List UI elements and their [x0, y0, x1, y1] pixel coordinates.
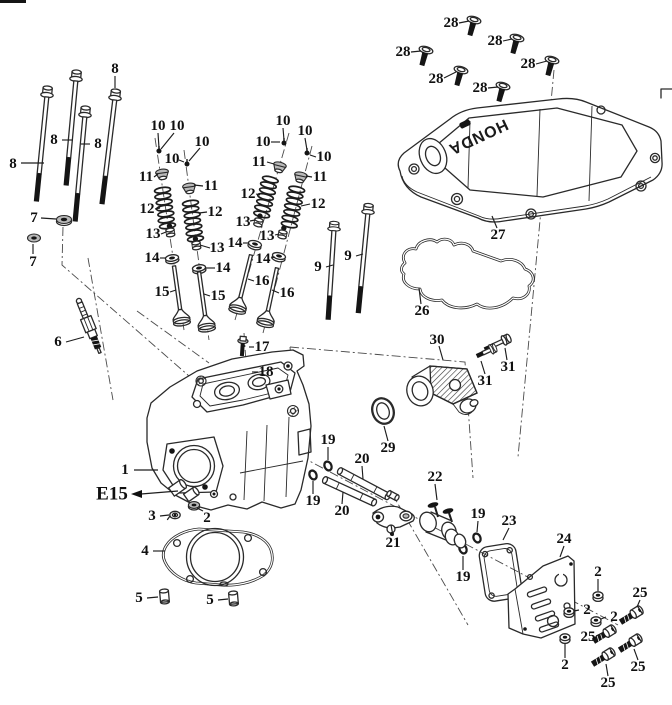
callout-label-12: 12	[311, 196, 326, 212]
part-oil-seal-29	[369, 395, 398, 427]
callout-label-9: 9	[344, 248, 352, 264]
callout-leader	[267, 162, 274, 164]
callout-label-2: 2	[610, 609, 618, 625]
callout-label-23: 23	[502, 513, 517, 529]
callout-leader	[411, 51, 421, 52]
callout-leader	[503, 39, 512, 41]
callout-leader	[283, 128, 284, 140]
part-camshaft-30	[403, 366, 479, 415]
callout-label-13: 13	[146, 226, 161, 242]
callout-label-19: 19	[306, 493, 321, 509]
callout-label-27: 27	[491, 227, 507, 243]
callout-label-14: 14	[145, 250, 161, 266]
callout-leader	[435, 484, 437, 500]
callout-label-5: 5	[135, 590, 143, 606]
callout-label-16: 16	[255, 273, 271, 289]
callout-leader	[170, 290, 176, 292]
callout-label-5: 5	[206, 592, 214, 608]
parts-diagram-canvas: HONDA	[0, 0, 672, 705]
part-head-gasket-4	[163, 529, 272, 587]
callout-leader	[444, 72, 456, 78]
callout-label-10: 10	[195, 134, 210, 150]
callout-label-19: 19	[321, 432, 336, 448]
part-cover-gasket-26	[401, 239, 533, 308]
callout-label-14: 14	[216, 260, 232, 276]
callout-leader	[305, 138, 307, 150]
callout-leader	[477, 521, 478, 532]
part-valve-cover-27: HONDA	[398, 98, 662, 222]
callout-label-18: 18	[259, 364, 274, 380]
callout-label-11: 11	[139, 169, 153, 185]
callout-label-6: 6	[54, 334, 62, 350]
callout-label-8: 8	[94, 136, 102, 152]
callout-leader	[301, 204, 310, 206]
callout-leader	[204, 294, 210, 296]
callout-label-25: 25	[581, 629, 596, 645]
callout-label-31: 31	[501, 359, 516, 375]
callout-label-28: 28	[473, 80, 488, 96]
callout-leader	[248, 279, 254, 281]
callout-label-10: 10	[256, 134, 271, 150]
callout-label-10: 10	[298, 123, 313, 139]
callout-leader	[158, 133, 159, 148]
callout-leader	[147, 597, 158, 598]
section-marker-text: E15	[96, 484, 128, 505]
corner-mark-top-right	[661, 89, 672, 98]
callout-leader	[503, 528, 509, 540]
callout-leader	[160, 515, 169, 516]
part-cylinder-head-1	[147, 350, 311, 510]
callout-leader	[41, 218, 56, 219]
callout-label-2: 2	[203, 510, 211, 526]
callout-label-15: 15	[155, 284, 170, 300]
callout-label-11: 11	[252, 154, 266, 170]
callout-label-28: 28	[429, 71, 444, 87]
part-bolt-3	[168, 511, 181, 519]
callout-label-1: 1	[121, 462, 129, 478]
callout-label-8: 8	[9, 156, 17, 172]
callout-label-13: 13	[236, 214, 251, 230]
callout-label-8: 8	[50, 132, 58, 148]
callout-label-20: 20	[355, 451, 370, 467]
callout-label-28: 28	[396, 44, 411, 60]
arrow-left-icon	[131, 490, 142, 498]
callout-label-12: 12	[140, 201, 155, 217]
callout-label-8: 8	[111, 61, 119, 77]
callout-label-26: 26	[415, 303, 431, 319]
callout-label-11: 11	[204, 178, 218, 194]
callout-label-2: 2	[583, 602, 591, 618]
callout-leader	[179, 160, 184, 162]
callout-leader	[310, 155, 316, 157]
callout-leader	[459, 21, 469, 23]
callout-label-11: 11	[313, 169, 327, 185]
callout-label-2: 2	[594, 564, 602, 580]
callout-label-24: 24	[557, 531, 573, 547]
callout-leader	[155, 208, 160, 209]
callout-label-7: 7	[30, 210, 38, 226]
callout-label-12: 12	[208, 204, 223, 220]
part-lifter-assembly-22	[417, 501, 468, 549]
callout-label-13: 13	[210, 240, 225, 256]
callout-label-30: 30	[430, 332, 445, 348]
callout-label-10: 10	[151, 118, 166, 134]
callout-leader	[66, 337, 84, 342]
callout-label-9: 9	[314, 259, 322, 275]
callout-label-17: 17	[255, 339, 271, 355]
part-rocker-shafts-20	[322, 467, 400, 507]
valve-assembly-intake	[154, 146, 216, 333]
callout-leader	[488, 87, 498, 88]
callout-leader	[161, 133, 174, 149]
callout-label-4: 4	[141, 543, 149, 559]
callout-leader	[199, 212, 207, 213]
exploded-view-diagram: HONDA	[0, 0, 672, 705]
callout-label-21: 21	[386, 535, 401, 551]
callout-leader	[384, 426, 388, 441]
callout-label-3: 3	[148, 508, 156, 524]
part-head-bolts-8	[30, 69, 122, 222]
callout-label-19: 19	[456, 569, 471, 585]
callout-label-13: 13	[260, 228, 275, 244]
callout-label-25: 25	[631, 659, 646, 675]
callout-label-25: 25	[633, 585, 648, 601]
callout-label-31: 31	[478, 373, 493, 389]
callout-label-28: 28	[521, 56, 536, 72]
part-dowel-pins-5	[159, 589, 238, 607]
callout-label-16: 16	[280, 285, 296, 301]
callout-label-10: 10	[317, 149, 332, 165]
callout-label-22: 22	[428, 469, 443, 485]
callout-label-20: 20	[335, 503, 350, 519]
callout-label-7: 7	[29, 254, 37, 270]
callout-label-28: 28	[488, 33, 503, 49]
callout-label-29: 29	[381, 440, 396, 456]
callout-leader	[218, 599, 228, 600]
callout-leader	[536, 61, 547, 64]
callout-leader	[362, 466, 363, 479]
part-bolt-17	[237, 336, 248, 356]
callout-label-28: 28	[444, 15, 459, 31]
callout-label-12: 12	[241, 186, 256, 202]
callout-label-10: 10	[165, 151, 180, 167]
scan-mark-top-left	[0, 0, 26, 3]
callout-label-14: 14	[228, 235, 244, 251]
callout-label-10: 10	[170, 118, 185, 134]
callout-label-25: 25	[601, 675, 616, 691]
callout-label-15: 15	[211, 288, 226, 304]
part-rocker-arm-21	[373, 506, 415, 536]
callout-label-19: 19	[471, 506, 486, 522]
callout-leader	[560, 546, 564, 557]
callout-leader	[439, 346, 443, 360]
callout-leader	[161, 232, 166, 234]
callout-label-2: 2	[561, 657, 569, 673]
callout-label-14: 14	[256, 251, 272, 267]
callout-label-10: 10	[276, 113, 291, 129]
